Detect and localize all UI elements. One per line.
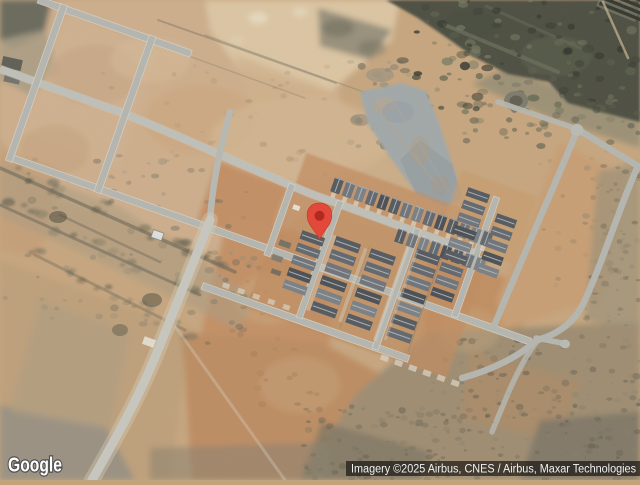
svg-text:Imagery ©2025 Airbus, CNES / A: Imagery ©2025 Airbus, CNES / Airbus, Max… (351, 464, 636, 476)
svg-text:Google: Google (8, 455, 62, 477)
